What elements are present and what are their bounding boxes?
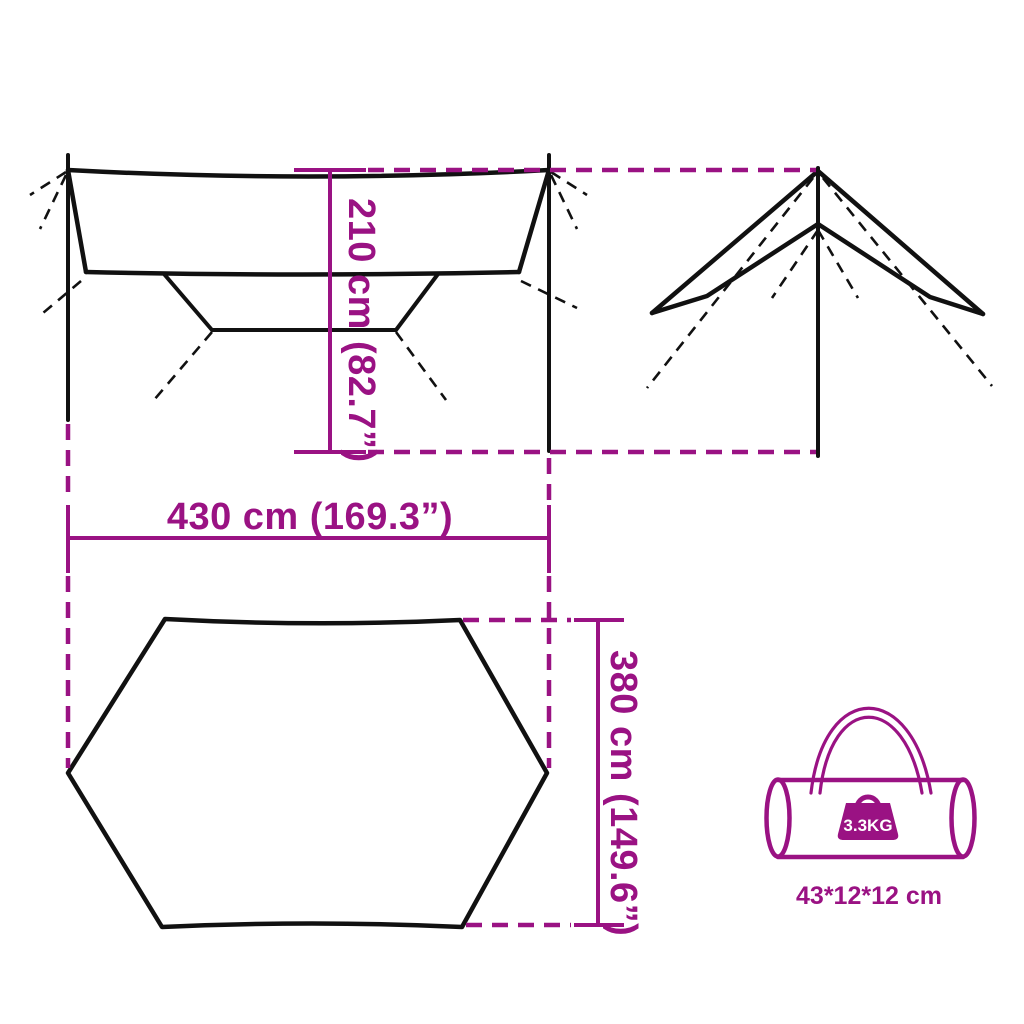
bag-weight-label: 3.3KG (843, 816, 892, 835)
front-guy-ropes-dashed (30, 172, 587, 400)
front-guyline-trapezoid (164, 274, 438, 330)
side-view (647, 168, 992, 456)
weight-icon: 3.3KG (838, 797, 899, 840)
depth-dimension-label: 380 cm (149.6”) (602, 650, 644, 936)
front-tarp-right-edge (519, 170, 549, 272)
front-tarp-left-edge (68, 170, 86, 272)
carry-bag-icon: 3.3KG 43*12*12 cm (767, 708, 975, 910)
bag-right-end (952, 780, 975, 857)
diagram-canvas: 430 cm (169.3”) 210 cm (82.7”) 380 cm (1… (0, 0, 1024, 1024)
width-dimension (68, 424, 549, 768)
height-dimension-label: 210 cm (82.7”) (340, 198, 382, 463)
bag-size-label: 43*12*12 cm (796, 882, 942, 910)
front-tarp-bottom-edge (86, 272, 519, 275)
front-view (30, 155, 587, 451)
hexagon-outline (68, 619, 547, 927)
top-view-hexagon (68, 619, 547, 927)
width-dimension-label: 430 cm (169.3”) (167, 496, 453, 538)
product-dimension-diagram: 430 cm (169.3”) 210 cm (82.7”) 380 cm (1… (0, 0, 1024, 1024)
side-lower-edge-right (818, 224, 983, 314)
bag-left-end (767, 780, 790, 857)
